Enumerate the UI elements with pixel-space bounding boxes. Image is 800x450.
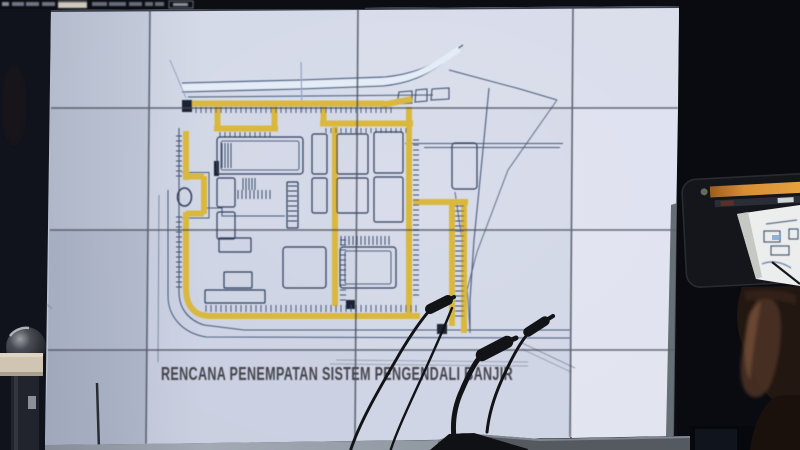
svg-text:RENCANA PENEMPATAN SISTEM PENG: RENCANA PENEMPATAN SISTEM PENGENDALI BAN…	[161, 363, 513, 384]
